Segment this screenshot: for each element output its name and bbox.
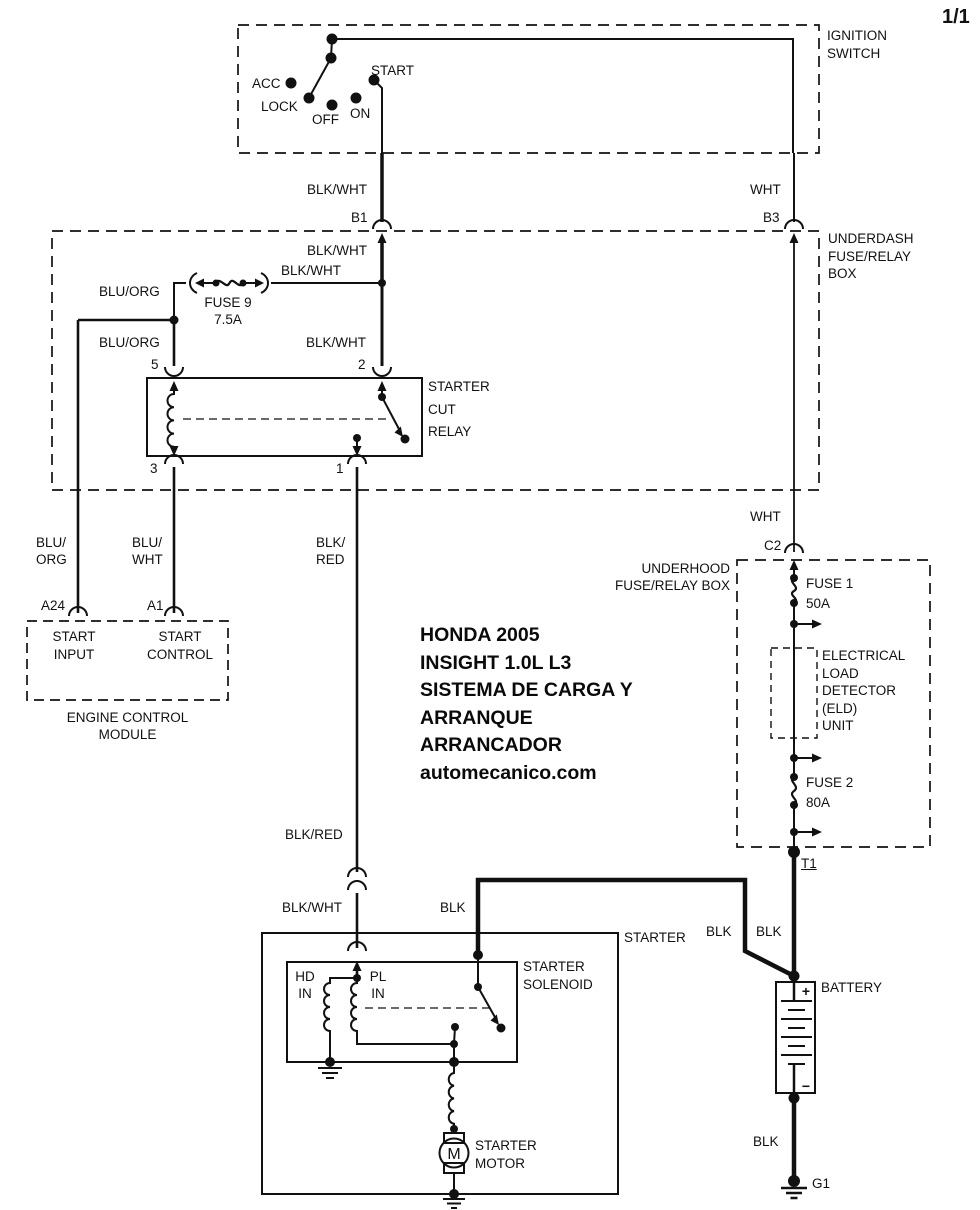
battery-minus-sign: − [802, 1078, 810, 1094]
wire-label-blkred-pin1: BLK/ RED [316, 534, 345, 568]
blk-red-wire [348, 467, 366, 978]
wire-label-bluorg-upper: BLU/ORG [99, 283, 160, 301]
ignition-switch-box [238, 25, 819, 153]
underdash-box-label: UNDERDASH FUSE/RELAY BOX [828, 230, 914, 283]
ignition-switch-label: IGNITION SWITCH [827, 27, 887, 62]
ecm-start-input: START INPUT [40, 628, 108, 663]
wire-label-blkwht-sol: BLK/WHT [282, 899, 342, 917]
ecm-pin-a1: A1 [147, 597, 164, 615]
relay-pin5-label: 5 [151, 356, 159, 374]
wht-wire-b3 [785, 153, 803, 578]
ecm-label: ENGINE CONTROL MODULE [40, 709, 215, 743]
ignition-switch-symbol [287, 35, 794, 154]
battery-plus-sign: + [802, 983, 810, 999]
start-wire-b1 [373, 153, 391, 376]
wire-label-wht-ign: WHT [750, 181, 781, 199]
solenoid-hd-in-label: HD IN [292, 968, 318, 1002]
starter-solenoid-box [287, 962, 517, 1062]
underdash-fuse-relay-box [52, 231, 819, 490]
wire-label-bluorg-lower: BLU/ORG [99, 334, 160, 352]
fuse9-label: FUSE 9 7.5A [195, 295, 261, 328]
ecm-wires [69, 316, 183, 617]
ecm-pin-a24: A24 [41, 597, 65, 615]
ign-pos-lock: LOCK [261, 98, 298, 116]
battery-label: BATTERY [821, 979, 882, 997]
eld-unit-label: ELECTRICAL LOAD DETECTOR (ELD) UNIT [822, 647, 905, 735]
starter-cut-relay-label: STARTER CUT RELAY [428, 376, 490, 444]
starter-solenoid-label: STARTER SOLENOID [523, 958, 593, 993]
underhood-box-label: UNDERHOOD FUSE/RELAY BOX [595, 560, 730, 594]
title-block: HONDA 2005 INSIGHT 1.0L L3 SISTEMA DE CA… [420, 622, 633, 787]
starter-cut-relay-symbol [168, 381, 410, 464]
ign-pos-acc: ACC [252, 75, 281, 93]
wire-label-wht-c2: WHT [750, 508, 781, 526]
starter-motor-label: STARTER MOTOR [475, 1137, 537, 1172]
ign-pos-start: START [371, 62, 414, 80]
ign-pos-off: OFF [312, 111, 339, 129]
ecm-start-control: START CONTROL [136, 628, 224, 663]
relay-pin3-label: 3 [150, 460, 158, 478]
wire-label-blkred-mid: BLK/RED [285, 826, 343, 844]
terminal-c2: C2 [764, 537, 781, 555]
wire-label-blkwht-pin2: BLK/WHT [306, 334, 366, 352]
relay-pin1-label: 1 [336, 460, 344, 478]
solenoid-pl-in-label: PL IN [366, 968, 390, 1002]
ign-pos-on: ON [350, 105, 370, 123]
wire-label-blk-left: BLK [706, 923, 732, 941]
wire-label-bluorg-a24: BLU/ ORG [36, 534, 67, 568]
terminal-b3: B3 [763, 209, 780, 227]
terminal-b1: B1 [351, 209, 368, 227]
starter-solenoid-symbol [318, 950, 506, 1078]
ground-g1-label: G1 [812, 1175, 830, 1193]
fuse2-label: FUSE 2 80A [806, 773, 853, 813]
starter-motor-symbol [440, 1062, 469, 1208]
wire-label-blk-right: BLK [756, 923, 782, 941]
wire-label-blk-sol: BLK [440, 899, 466, 917]
wiring-diagram: + − M 1/1 IGNITION SWITCH ACC LOCK OFF O… [0, 0, 980, 1210]
wire-label-blkwht-b1: BLK/WHT [307, 242, 367, 260]
wire-label-blkwht-fuse9: BLK/WHT [281, 262, 341, 280]
starter-label: STARTER [624, 929, 686, 947]
battery-symbol: + − [776, 971, 815, 1199]
relay-pin2-label: 2 [358, 356, 366, 374]
terminal-t1: T1 [801, 855, 817, 873]
fuse1-label: FUSE 1 50A [806, 574, 853, 614]
wire-label-blkwht-ign: BLK/WHT [307, 181, 367, 199]
page-indicator: 1/1 [942, 6, 970, 29]
motor-m-symbol: M [447, 1146, 460, 1163]
wire-label-bluwht-a1: BLU/ WHT [132, 534, 163, 568]
wire-label-blk-gnd: BLK [753, 1133, 779, 1151]
